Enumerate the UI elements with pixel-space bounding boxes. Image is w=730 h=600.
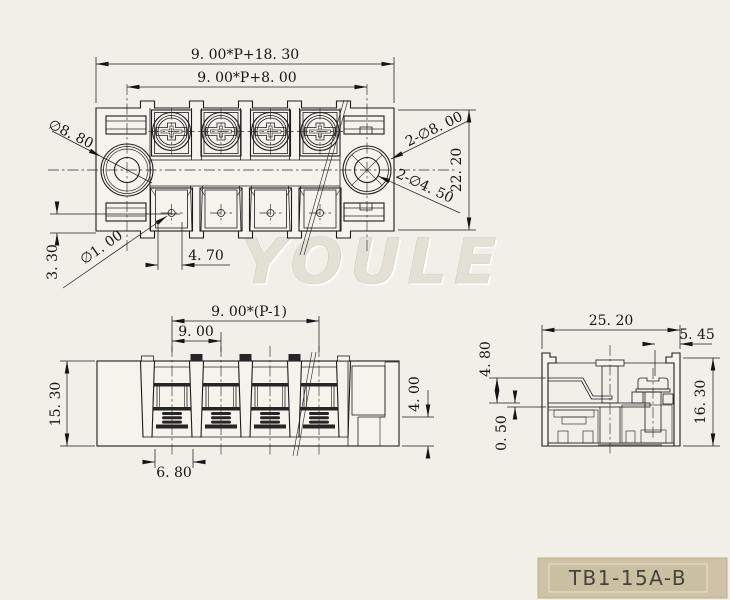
label-mount-hole: ∅8. 80 <box>46 117 96 152</box>
label-holes-small: 2-∅4. 50 <box>393 166 455 206</box>
dim-depth: 22. 20 <box>449 148 465 193</box>
dim-slot: 6. 80 <box>156 465 192 481</box>
dim-hole-pitch: 4. 70 <box>188 248 224 264</box>
dim-hole-offset: 3. 30 <box>45 244 61 280</box>
dim-section-top: 5. 45 <box>679 327 715 343</box>
front-view: 15. 30 9. 00*(P-1) 9. 00 6. 80 4. 00 <box>48 304 434 481</box>
watermark: YOULE YOULE <box>241 225 506 300</box>
dim-notch: 4. 00 <box>407 376 423 412</box>
dim-section-base: 0. 50 <box>494 415 510 451</box>
dim-section-width: 25. 20 <box>589 313 634 329</box>
section-view-dimensions: 25. 20 5. 45 4. 80 0. 50 16. 30 <box>478 313 720 451</box>
label-wire-hole: ∅1. 00 <box>78 227 126 268</box>
part-number: TB1-15A-B <box>568 566 687 590</box>
dim-total-pitch: 9. 00*(P-1) <box>211 304 287 320</box>
dim-front-height: 15. 30 <box>48 382 64 427</box>
top-view-body <box>96 101 394 238</box>
dim-pitch: 9. 00 <box>178 324 214 340</box>
contact-strip <box>548 378 612 399</box>
title-block: TB1-15A-B <box>538 558 727 598</box>
section-left-wall <box>542 353 556 446</box>
watermark-text: YOULE <box>241 225 504 298</box>
section-view: 25. 20 5. 45 4. 80 0. 50 16. 30 <box>478 313 720 456</box>
label-holes-large: 2-∅8. 00 <box>403 109 465 150</box>
technical-drawing-canvas: YOULE YOULE <box>0 0 730 600</box>
dim-section-contact: 4. 80 <box>478 341 494 377</box>
dim-mount-spacing: 9. 00*P+8. 00 <box>197 70 296 86</box>
dim-overall-width: 9. 00*P+18. 30 <box>191 47 299 63</box>
dim-section-height: 16. 30 <box>693 380 709 425</box>
